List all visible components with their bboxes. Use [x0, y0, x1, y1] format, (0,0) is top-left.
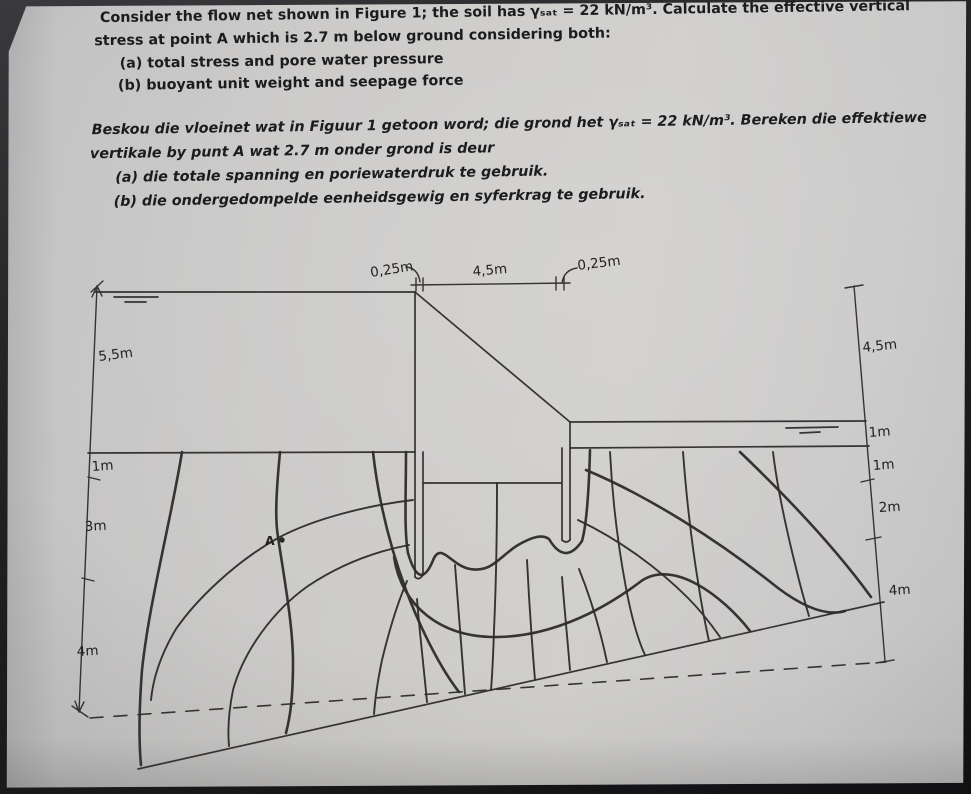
right-dim-2m: 2m [878, 499, 901, 516]
downstream-ground-line [570, 446, 869, 448]
right-dim-4-5m: 4,5m [862, 336, 898, 356]
top-left-offset-label: 0,25m [369, 258, 414, 281]
equipotential [455, 565, 465, 694]
flow-line [140, 452, 182, 765]
downstream-water-level-icon [786, 427, 838, 433]
flow-lines [140, 450, 871, 765]
equipotential [578, 520, 720, 637]
water-surfaces [95, 292, 866, 433]
right-dim-4m: 4m [888, 582, 911, 599]
equipotential [228, 545, 409, 746]
flow-line-through-A [276, 452, 293, 733]
equipotential [773, 452, 809, 616]
right-dim-1m-lower: 1m [872, 457, 895, 474]
top-right-offset-label: 0,25m [577, 253, 622, 274]
dimension-lines [72, 267, 894, 717]
dam-structure [415, 292, 570, 579]
point-a-label: A [265, 533, 275, 548]
downstream-water-surface [570, 421, 866, 422]
equipotential-lines [151, 452, 809, 746]
right-dim-1m-upper: 1m [868, 424, 891, 441]
point-a-dot [279, 537, 284, 542]
equipotential [527, 560, 535, 680]
top-dimension-line [411, 283, 570, 285]
flow-line [586, 470, 845, 613]
bottom-boundaries [90, 602, 886, 769]
upstream-ground-line [88, 452, 415, 453]
worksheet-photo: Consider the flow net shown in Figure 1;… [0, 0, 971, 794]
equipotential [683, 452, 709, 641]
top-span-label: 4,5m [472, 261, 508, 280]
left-dim-1m: 1m [91, 458, 114, 475]
impermeable-base-line [138, 602, 884, 769]
equipotential [491, 483, 497, 690]
ground-surfaces [88, 446, 869, 453]
right-pile-tip [562, 540, 570, 542]
dam-downstream-slope [415, 292, 570, 422]
left-dim-5-5m: 5,5m [98, 345, 134, 365]
upstream-water-level-icon [114, 297, 158, 302]
left-dim-3m: 3m [84, 518, 107, 535]
equipotential [374, 581, 407, 714]
left-dim-4m: 4m [76, 643, 99, 660]
flow-net-figure: A 0,25m 4,5m 0,25m 5,5m 1m 3m 4m 4,5m 1m… [0, 0, 971, 794]
equipotential-through-A [151, 500, 413, 700]
